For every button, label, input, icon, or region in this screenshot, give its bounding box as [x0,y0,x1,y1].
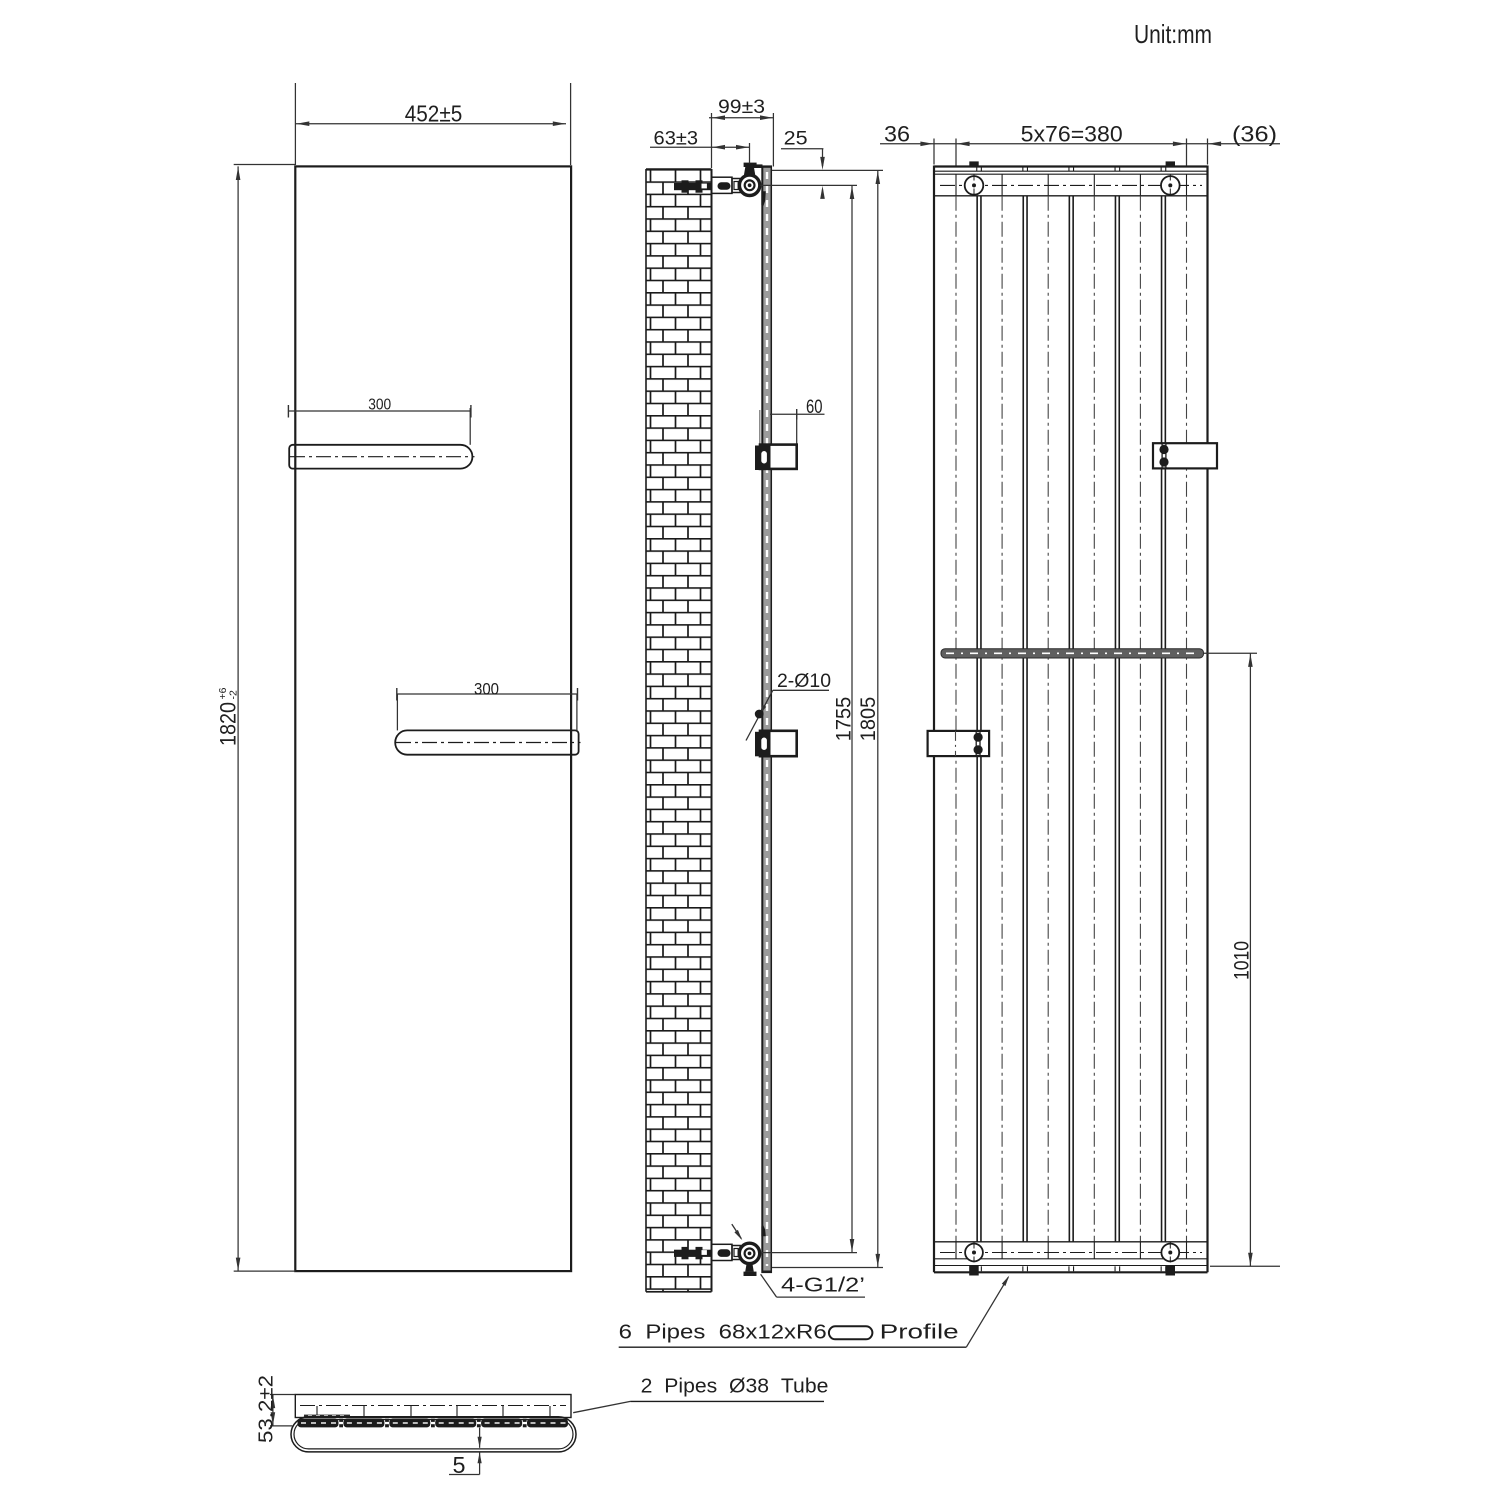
svg-text:(36): (36) [1232,121,1277,146]
svg-text:5x76=380: 5x76=380 [1021,121,1123,146]
svg-text:2 Pipes Ø38 Tube: 2 Pipes Ø38 Tube [641,1375,829,1397]
svg-text:300: 300 [368,396,391,413]
svg-text:452±5: 452±5 [405,100,463,126]
svg-text:53.2±2: 53.2±2 [255,1375,277,1443]
svg-text:-2: -2 [228,690,240,699]
svg-text:36: 36 [884,121,910,146]
svg-text:300: 300 [474,681,499,699]
svg-text:1805: 1805 [857,697,880,741]
svg-text:6 Pipes 68x12xR6: 6 Pipes 68x12xR6 [619,1321,827,1343]
svg-text:1755: 1755 [832,697,855,741]
svg-text:4-G1/2’: 4-G1/2’ [781,1275,865,1297]
svg-text:Profile: Profile [880,1321,959,1343]
svg-text:5: 5 [453,1452,466,1478]
svg-text:1010: 1010 [1230,941,1253,980]
svg-text:1820: 1820 [216,702,241,746]
svg-text:99±3: 99±3 [718,97,765,118]
svg-text:2-Ø10: 2-Ø10 [777,671,831,692]
svg-text:25: 25 [784,128,808,150]
svg-text:63±3: 63±3 [654,128,699,150]
svg-text:Unit:mm: Unit:mm [1134,19,1212,49]
